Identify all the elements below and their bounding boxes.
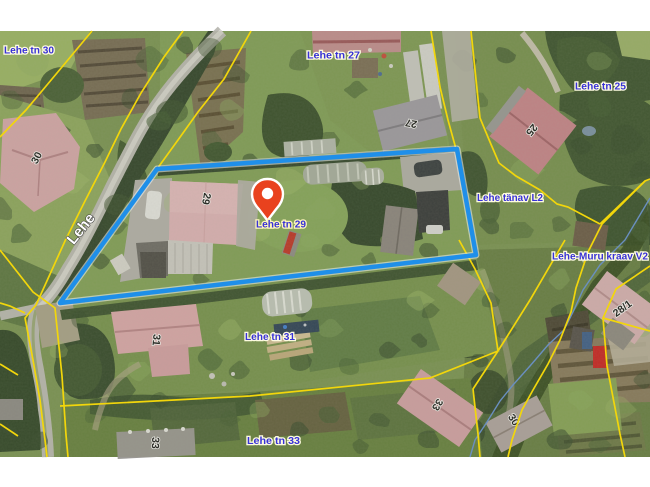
svg-text:Lehe tn 30: Lehe tn 30: [4, 46, 54, 57]
svg-text:Lehe tn 29: Lehe tn 29: [256, 220, 306, 231]
svg-text:Lehe tn 33: Lehe tn 33: [247, 436, 300, 447]
svg-text:Lehe tn 31: Lehe tn 31: [245, 332, 295, 343]
svg-text:Lehe tn 27: Lehe tn 27: [307, 51, 360, 62]
svg-text:Lehe-Muru kraav V2: Lehe-Muru kraav V2: [552, 252, 648, 263]
svg-text:Lehe tn 25: Lehe tn 25: [575, 82, 626, 93]
svg-text:Lehe tänav L2: Lehe tänav L2: [477, 193, 543, 204]
